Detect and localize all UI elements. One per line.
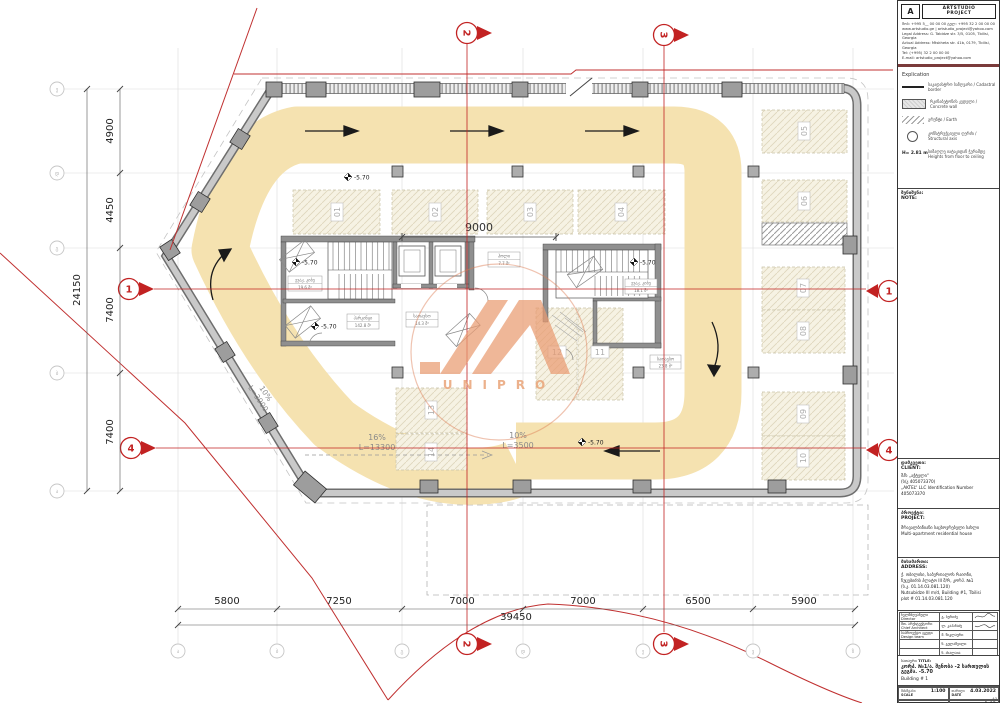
scale-cell: მასშტაბიSCALE 1:100 bbox=[898, 687, 949, 700]
legend-label: გრუნტი / Earth bbox=[928, 117, 957, 122]
legend-label: კონსტრუქციული ღერძი / Structural axis bbox=[928, 131, 996, 141]
axis-marker-2-top: 2 bbox=[457, 23, 493, 44]
earth-hatch-strip bbox=[762, 223, 847, 245]
svg-text:7250: 7250 bbox=[326, 596, 351, 607]
contact-line: Actual Address: Mtskheta str. 41b, 0179,… bbox=[902, 41, 995, 51]
svg-text:3: 3 bbox=[658, 641, 669, 648]
signature-table: ხელმძღვანელიDirector გ. ბერიძე მთ. არქიტ… bbox=[899, 612, 998, 656]
svg-text:7400: 7400 bbox=[105, 297, 116, 322]
address-label-en: ADDRESS: bbox=[901, 565, 996, 570]
note-section: შენიშვნა: NOTE: bbox=[898, 189, 999, 459]
drawing-sheet: 9000 01 02 03 04 05 06 07 08 09 10 11 12… bbox=[0, 0, 1000, 703]
svg-text:6500: 6500 bbox=[685, 596, 710, 607]
table-row: ნ. გელაშვილი bbox=[900, 639, 998, 648]
svg-text:3: 3 bbox=[658, 32, 669, 39]
svg-text:2: 2 bbox=[461, 30, 472, 37]
project-section: პროექტი: PROJECT: მრავალბინიანი საცხოვრე… bbox=[898, 509, 999, 558]
svg-text:5900: 5900 bbox=[791, 596, 816, 607]
svg-text:სათავსო: სათავსო bbox=[657, 356, 675, 361]
table-row: ნ. ახალაია bbox=[900, 648, 998, 656]
svg-text:გ: გ bbox=[401, 649, 404, 655]
axis-marker-4-right: 4 bbox=[866, 440, 897, 461]
svg-text:13: 13 bbox=[427, 405, 436, 415]
svg-text:L=13300: L=13300 bbox=[359, 443, 396, 452]
address-section: მისამართი: ADDRESS: ქ. თბილისი, საბურთალ… bbox=[898, 558, 999, 611]
axis-marker-4-left: 4 bbox=[121, 438, 157, 459]
svg-text:08: 08 bbox=[799, 326, 808, 336]
svg-text:ა: ა bbox=[177, 649, 180, 655]
contact-block: მობ: +995 5__ 00 00 00 ტელ: +995 32 2 00… bbox=[898, 20, 999, 63]
title-section: სათაური TITLE: კორპ. №1/ა. შენობა -2 სარ… bbox=[898, 656, 999, 686]
watermark-text: UNIPRO bbox=[443, 378, 556, 392]
concrete-wall-swatch bbox=[902, 99, 926, 109]
svg-text:L=3500: L=3500 bbox=[502, 441, 534, 450]
contact-line: Legal Address: G. Tabidze str. 3/5, 0105… bbox=[902, 32, 995, 42]
project-line: Multi-apartment residential house bbox=[901, 531, 996, 537]
team-section: ხელმძღვანელიDirector გ. ბერიძე მთ. არქიტ… bbox=[898, 611, 999, 656]
table-row: ხელმძღვანელიDirector გ. ბერიძე bbox=[900, 612, 998, 621]
svg-text:4: 4 bbox=[886, 446, 893, 457]
note-label-en: NOTE: bbox=[901, 196, 996, 201]
artstudio-logo-icon: A bbox=[901, 4, 920, 19]
project-label-en: PROJECT: bbox=[901, 516, 996, 521]
svg-text:ვ: ვ bbox=[752, 649, 755, 655]
svg-text:ე: ე bbox=[642, 649, 645, 655]
axis-marker-3-top: 3 bbox=[654, 25, 690, 46]
svg-text:4450: 4450 bbox=[105, 197, 116, 222]
svg-text:09: 09 bbox=[799, 409, 808, 419]
svg-text:სათავსო: სათავსო bbox=[413, 314, 431, 319]
logo-row: A ARTSTUDIO PROJECT bbox=[898, 1, 999, 20]
svg-text:7000: 7000 bbox=[570, 596, 595, 607]
svg-text:16%: 16% bbox=[368, 433, 386, 442]
svg-text:2: 2 bbox=[461, 641, 472, 648]
meta-section: მასშტაბიSCALE 1:100 თარიღიDATE 4.03.2022… bbox=[898, 686, 999, 703]
svg-text:7400: 7400 bbox=[105, 419, 116, 444]
building-subtitle: Building # 1 bbox=[901, 677, 996, 682]
svg-text:-5.70: -5.70 bbox=[354, 175, 370, 182]
legend-label: სიმაღლე იატაკიდან ჭერამდეHeights from fl… bbox=[928, 149, 985, 159]
height-value: H= 2.81 m bbox=[902, 151, 924, 156]
axis-marker-3-bottom: 3 bbox=[654, 634, 690, 655]
svg-text:დ: დ bbox=[55, 171, 59, 177]
svg-text:დ: დ bbox=[521, 649, 525, 655]
logo-name-line2: PROJECT bbox=[947, 12, 972, 17]
svg-text:-5.70: -5.70 bbox=[640, 260, 656, 267]
svg-text:24150: 24150 bbox=[72, 274, 83, 306]
svg-text:11: 11 bbox=[595, 348, 605, 357]
contact-line: E-mail: artstudio_project@yahoo.com bbox=[902, 56, 995, 61]
signature-mark bbox=[972, 621, 997, 630]
drawing-area: 9000 01 02 03 04 05 06 07 08 09 10 11 12… bbox=[0, 0, 897, 703]
table-row: საპროექტო ჯგუფიDesign team მ. წიკლაური bbox=[900, 630, 998, 639]
svg-text:02: 02 bbox=[431, 207, 440, 217]
cadastral-border-swatch bbox=[902, 86, 924, 88]
table-row: მთ. არქიტექტორიChief Architect ლ. კაპანა… bbox=[900, 621, 998, 630]
svg-text:04: 04 bbox=[617, 207, 626, 217]
svg-text:06: 06 bbox=[800, 196, 809, 206]
svg-text:-5.70: -5.70 bbox=[588, 440, 604, 447]
svg-text:7000: 7000 bbox=[449, 596, 474, 607]
svg-text:07: 07 bbox=[799, 283, 808, 293]
explication-heading: Explication bbox=[902, 72, 996, 78]
dim-9000: 9000 bbox=[465, 221, 493, 234]
axis-marker-1-left: 1 bbox=[119, 279, 155, 300]
client-section: დამკვეთი: CLIENT: შპს „აქტელი“ (ს/კ 4050… bbox=[898, 459, 999, 509]
earth-swatch bbox=[902, 116, 924, 124]
client-line: „AKTEL“ LLC Identification Number 405073… bbox=[901, 485, 996, 497]
sheet-title: კორპ. №1/ა. შენობა -2 სართულის გეგმა. -5… bbox=[901, 665, 996, 677]
legend-label: საკადასტრო საზღვარი / Cadastral border bbox=[928, 82, 996, 92]
legend-label: რკინაბეტონის კედელი / Concrete wall bbox=[930, 99, 996, 109]
client-label-en: CLIENT: bbox=[901, 466, 996, 471]
svg-text:1: 1 bbox=[886, 287, 893, 298]
svg-text:23.8 მ²: 23.8 მ² bbox=[659, 363, 673, 368]
svg-text:ჰოლი: ჰოლი bbox=[498, 254, 510, 259]
svg-text:5800: 5800 bbox=[214, 596, 239, 607]
svg-text:-5.70: -5.70 bbox=[302, 260, 318, 267]
title-block: A ARTSTUDIO PROJECT მობ: +995 5__ 00 00 … bbox=[897, 0, 1000, 703]
svg-text:05: 05 bbox=[800, 126, 809, 136]
svg-text:-5.70: -5.70 bbox=[321, 324, 337, 331]
svg-text:ევაკ. კიბე: ევაკ. კიბე bbox=[631, 281, 651, 286]
svg-text:ევაკ. კიბე: ევაკ. კიბე bbox=[295, 278, 315, 283]
title-label: სათაური TITLE: bbox=[901, 658, 996, 663]
svg-text:01: 01 bbox=[333, 207, 342, 217]
svg-text:ბ: ბ bbox=[276, 648, 279, 655]
svg-text:14: 14 bbox=[427, 447, 436, 457]
axis-marker-1-right: 1 bbox=[866, 281, 897, 302]
svg-text:4: 4 bbox=[128, 444, 135, 455]
svg-text:10: 10 bbox=[799, 453, 808, 463]
svg-text:39450: 39450 bbox=[500, 612, 532, 623]
paper-size-label: A3 bbox=[992, 697, 997, 701]
svg-text:14.3 მ²: 14.3 მ² bbox=[415, 321, 429, 326]
explication-section: Explication საკადასტრო საზღვარი / Cadast… bbox=[898, 67, 999, 189]
address-line: plot # 01.14.03.081.120 bbox=[901, 596, 996, 602]
svg-text:03: 03 bbox=[526, 207, 535, 217]
contact-line: www.artstudio.ge | artstudio_project@yah… bbox=[902, 27, 995, 32]
svg-text:ა: ა bbox=[56, 489, 59, 495]
axis-marker-2-bottom: 2 bbox=[457, 634, 493, 655]
svg-text:გ: გ bbox=[56, 246, 59, 252]
svg-text:ბ: ბ bbox=[56, 370, 59, 377]
date-value: 4.03.2022 bbox=[970, 689, 996, 694]
structural-axis-swatch bbox=[902, 131, 924, 142]
svg-text:1: 1 bbox=[126, 285, 133, 296]
svg-text:4900: 4900 bbox=[105, 118, 116, 143]
signature-mark bbox=[972, 612, 997, 621]
site-boundary-dashed bbox=[427, 505, 868, 595]
svg-text:ე: ე bbox=[56, 87, 59, 93]
svg-text:პარკინგი: პარკინგი bbox=[354, 316, 373, 321]
logo-name: ARTSTUDIO PROJECT bbox=[922, 4, 996, 19]
stage-cell: ეტაპიSTAGE bbox=[898, 700, 949, 703]
scale-value: 1:100 bbox=[931, 689, 946, 694]
svg-text:142.8 მ²: 142.8 მ² bbox=[355, 323, 372, 328]
